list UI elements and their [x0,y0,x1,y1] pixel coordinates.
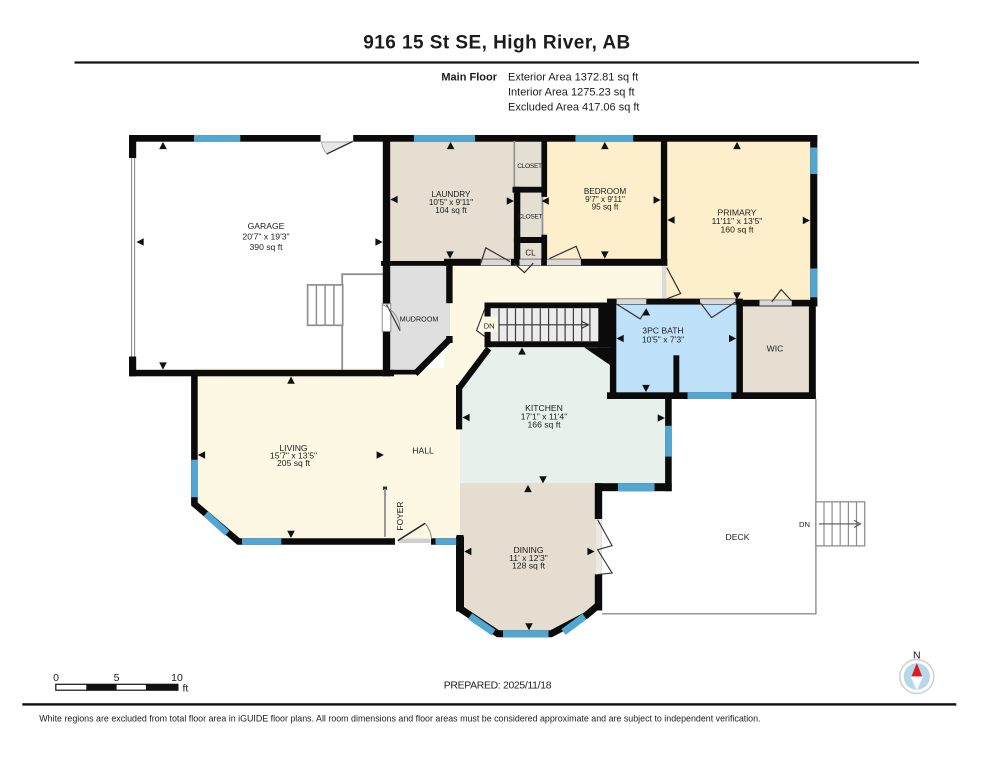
svg-text:10'5" x 7'3": 10'5" x 7'3" [642,335,684,345]
svg-text:Excluded Area 417.06 sq ft: Excluded Area 417.06 sq ft [508,102,639,114]
svg-text:CLOSET: CLOSET [517,163,542,170]
svg-text:FOYER: FOYER [395,502,405,531]
svg-text:WIC: WIC [767,344,784,354]
svg-text:Main Floor: Main Floor [441,72,497,84]
svg-text:CL: CL [525,249,536,258]
svg-text:Exterior Area 1372.81 sq ft: Exterior Area 1372.81 sq ft [508,72,638,84]
svg-text:166 sq ft: 166 sq ft [528,420,562,430]
svg-text:128 sq ft: 128 sq ft [512,560,546,570]
svg-text:HALL: HALL [412,446,434,456]
svg-text:PREPARED: 2025/11/18: PREPARED: 2025/11/18 [444,681,552,692]
svg-text:DN: DN [799,520,810,529]
svg-text:GARAGE: GARAGE [248,221,285,231]
svg-text:20'7" x 19'3": 20'7" x 19'3" [242,232,289,242]
svg-text:DECK: DECK [726,532,750,542]
svg-text:916 15 St SE, High River, AB: 916 15 St SE, High River, AB [363,33,630,54]
svg-text:390 sq ft: 390 sq ft [250,242,284,252]
svg-text:160 sq ft: 160 sq ft [721,225,755,235]
svg-text:10: 10 [171,672,183,684]
svg-text:0: 0 [53,672,59,684]
svg-text:MUDROOM: MUDROOM [400,315,439,324]
svg-text:Interior Area 1275.23 sq ft: Interior Area 1275.23 sq ft [508,87,635,99]
svg-text:N: N [913,650,921,662]
svg-text:95 sq ft: 95 sq ft [592,203,620,212]
svg-text:CLOSET: CLOSET [518,214,543,221]
svg-text:DN: DN [484,321,495,330]
svg-text:ft: ft [183,683,189,695]
svg-text:5: 5 [114,672,120,684]
svg-text:205 sq ft: 205 sq ft [277,458,311,468]
svg-text:White regions are excluded fro: White regions are excluded from total fl… [39,714,760,724]
svg-text:104 sq ft: 104 sq ft [435,206,467,215]
